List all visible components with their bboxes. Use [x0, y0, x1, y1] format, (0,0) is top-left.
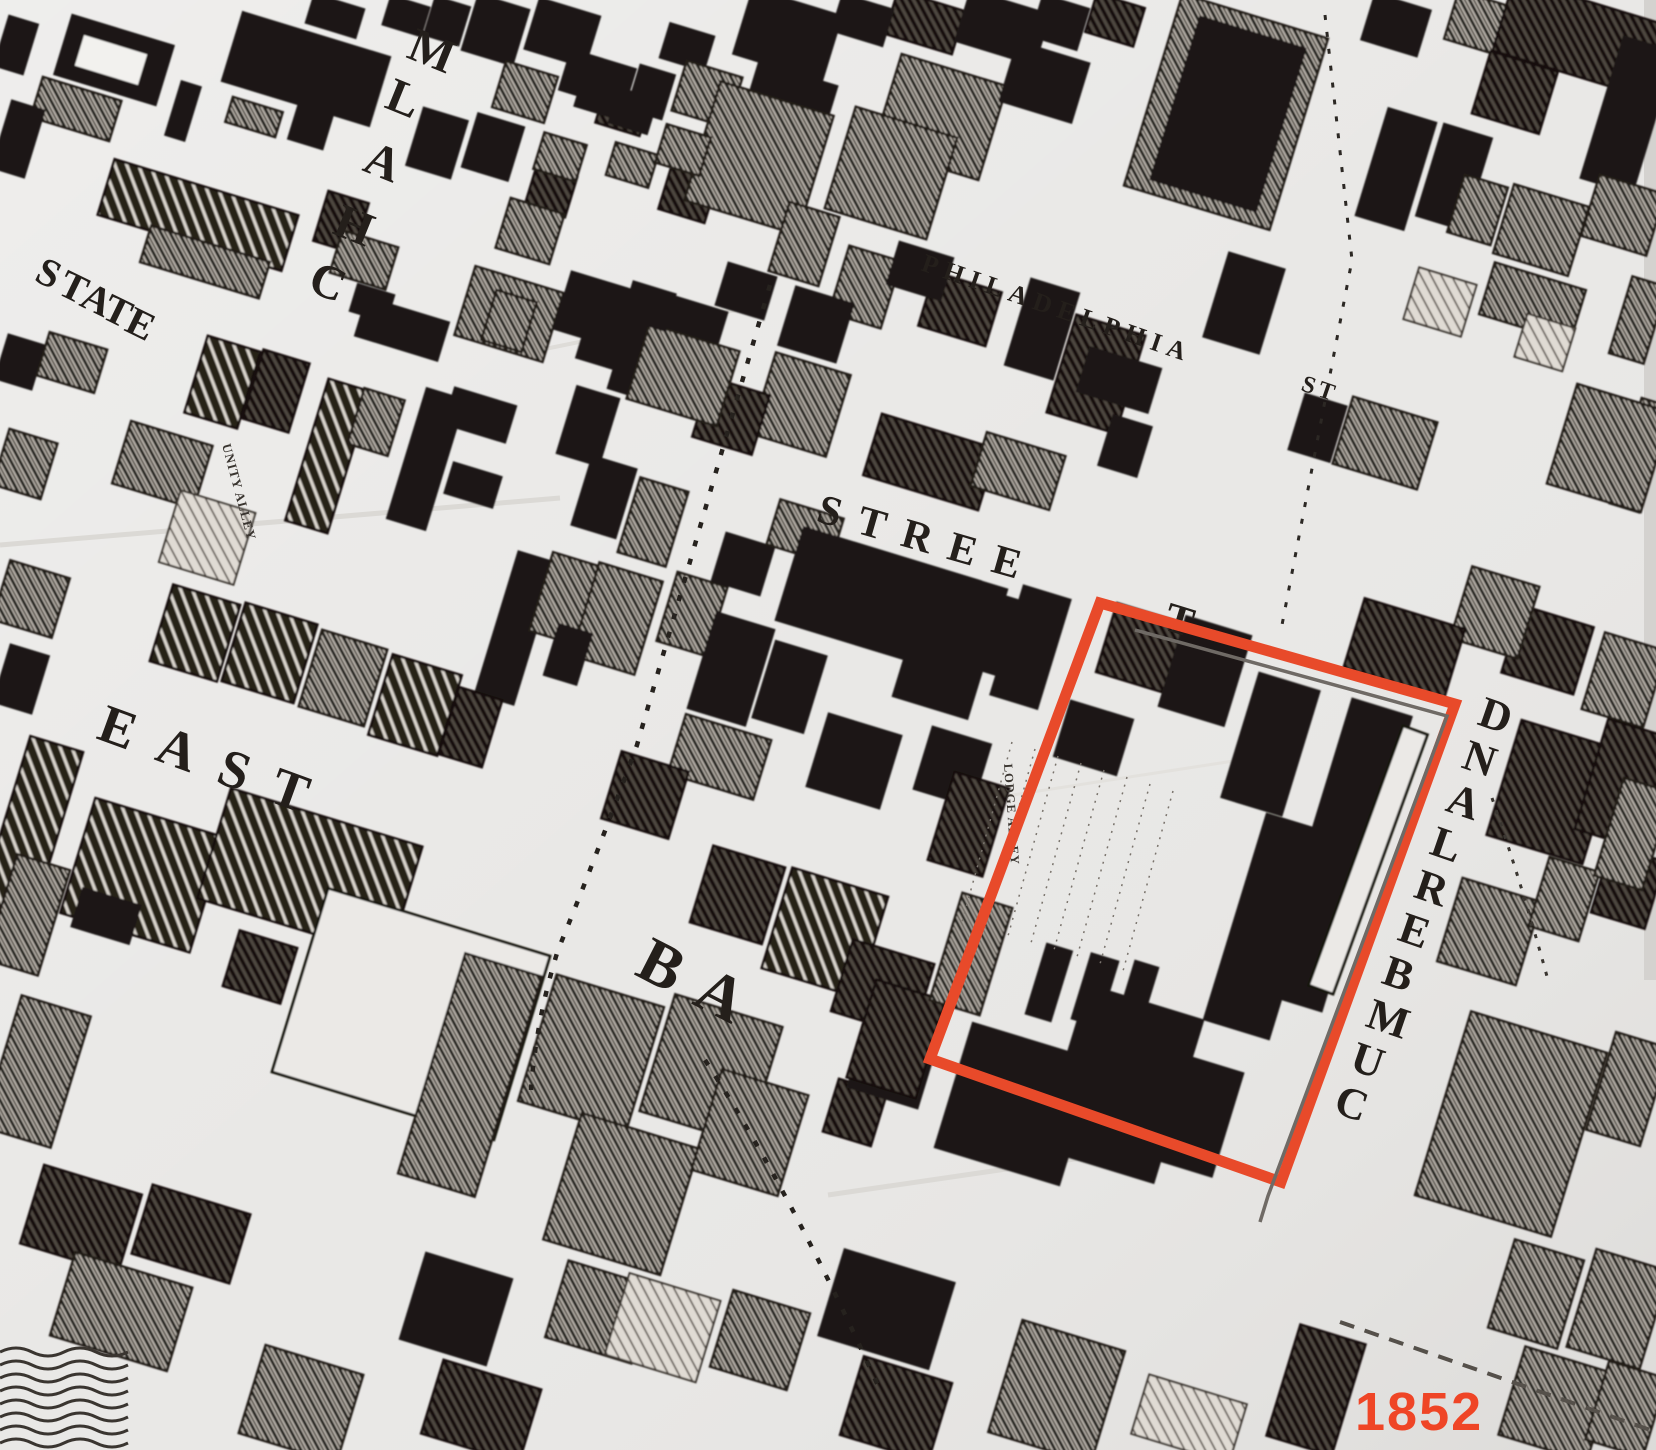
svg-text:1852: 1852: [1355, 1382, 1483, 1442]
